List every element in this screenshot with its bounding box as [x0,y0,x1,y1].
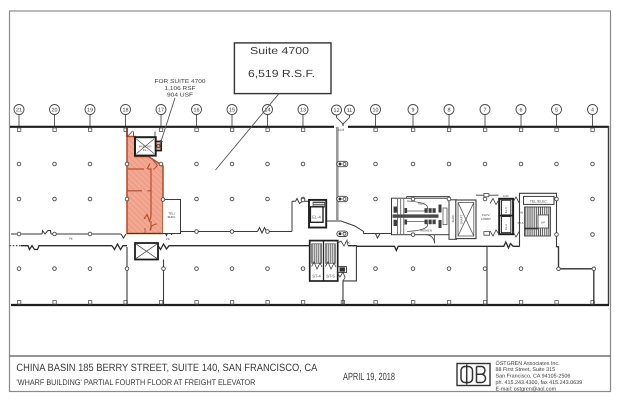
svg-text:ÖSTGREN Associates Inc.: ÖSTGREN Associates Inc. [496,360,560,367]
svg-text:FHC: FHC [345,242,350,245]
svg-text:13: 13 [300,108,306,114]
svg-text:MEN: MEN [418,202,425,206]
svg-text:18: 18 [123,108,129,114]
svg-text:FOR SUITE 4700: FOR SUITE 4700 [155,79,206,85]
svg-text:15: 15 [229,108,235,114]
svg-text:5: 5 [555,108,558,114]
svg-text:CHINA BASIN 185 BERRY STREET,: CHINA BASIN 185 BERRY STREET, SUITE 140,… [16,362,318,374]
svg-text:SHAFT: SHAFT [459,214,463,224]
svg-text:San Francisco, CA 94105-2506: San Francisco, CA 94105-2506 [496,374,571,380]
svg-text:ELEC.: ELEC. [168,215,177,219]
svg-text:11: 11 [347,108,353,114]
svg-text:7: 7 [484,108,487,114]
svg-text:EL.: EL. [143,148,148,152]
svg-text:10.8: 10.8 [338,128,344,132]
svg-text:8: 8 [448,108,451,114]
svg-text:PE: PE [69,237,73,241]
svg-text:E-mail: ostgren@aol.com: E-mail: ostgren@aol.com [496,386,557,392]
svg-text:EL-4: EL-4 [312,214,321,219]
svg-text:EL-5: EL-5 [504,207,508,213]
svg-text:ELEC: ELEC [451,214,455,223]
svg-text:ST-4: ST-4 [312,274,321,279]
svg-text:10: 10 [373,108,379,114]
svg-text:9: 9 [412,108,415,114]
svg-text:ST-5: ST-5 [326,274,335,279]
svg-text:904 USF: 904 USF [167,93,194,99]
svg-text:21: 21 [16,108,22,114]
svg-text:16: 16 [194,108,200,114]
svg-text:EL-6: EL-6 [504,224,508,230]
svg-text:88 First Street, Suite 315: 88 First Street, Suite 315 [496,367,556,373]
svg-text:6: 6 [520,108,523,114]
svg-text:1,106 RSF: 1,106 RSF [165,86,197,92]
svg-text:Suite 4700: Suite 4700 [250,46,310,57]
svg-text:19: 19 [87,108,93,114]
svg-text:ST-6: ST-6 [518,221,524,225]
svg-text:4: 4 [591,108,594,114]
svg-text:20: 20 [52,108,58,114]
svg-text:LOBBY: LOBBY [481,217,491,221]
svg-text:DN: DN [519,211,523,215]
svg-text:12: 12 [334,108,340,114]
svg-text:FHC: FHC [503,194,509,198]
svg-text:17: 17 [158,108,164,114]
svg-text:TEL./ELEC.: TEL./ELEC. [530,199,548,203]
svg-text:UP: UP [541,221,545,225]
svg-text:WOMEN: WOMEN [420,228,432,232]
svg-text:PE: PE [166,237,170,241]
svg-text:6,519 R.S.F.: 6,519 R.S.F. [248,69,315,80]
svg-text:ph. 415.243.4300, fax 415.243.: ph. 415.243.4300, fax 415.243.0639 [496,380,583,386]
svg-text:APRIL 19, 2018: APRIL 19, 2018 [343,372,395,383]
svg-text:'WHARF BUILDING' PARTIAL FOURT: 'WHARF BUILDING' PARTIAL FOURTH FLOOR AT… [16,378,255,387]
